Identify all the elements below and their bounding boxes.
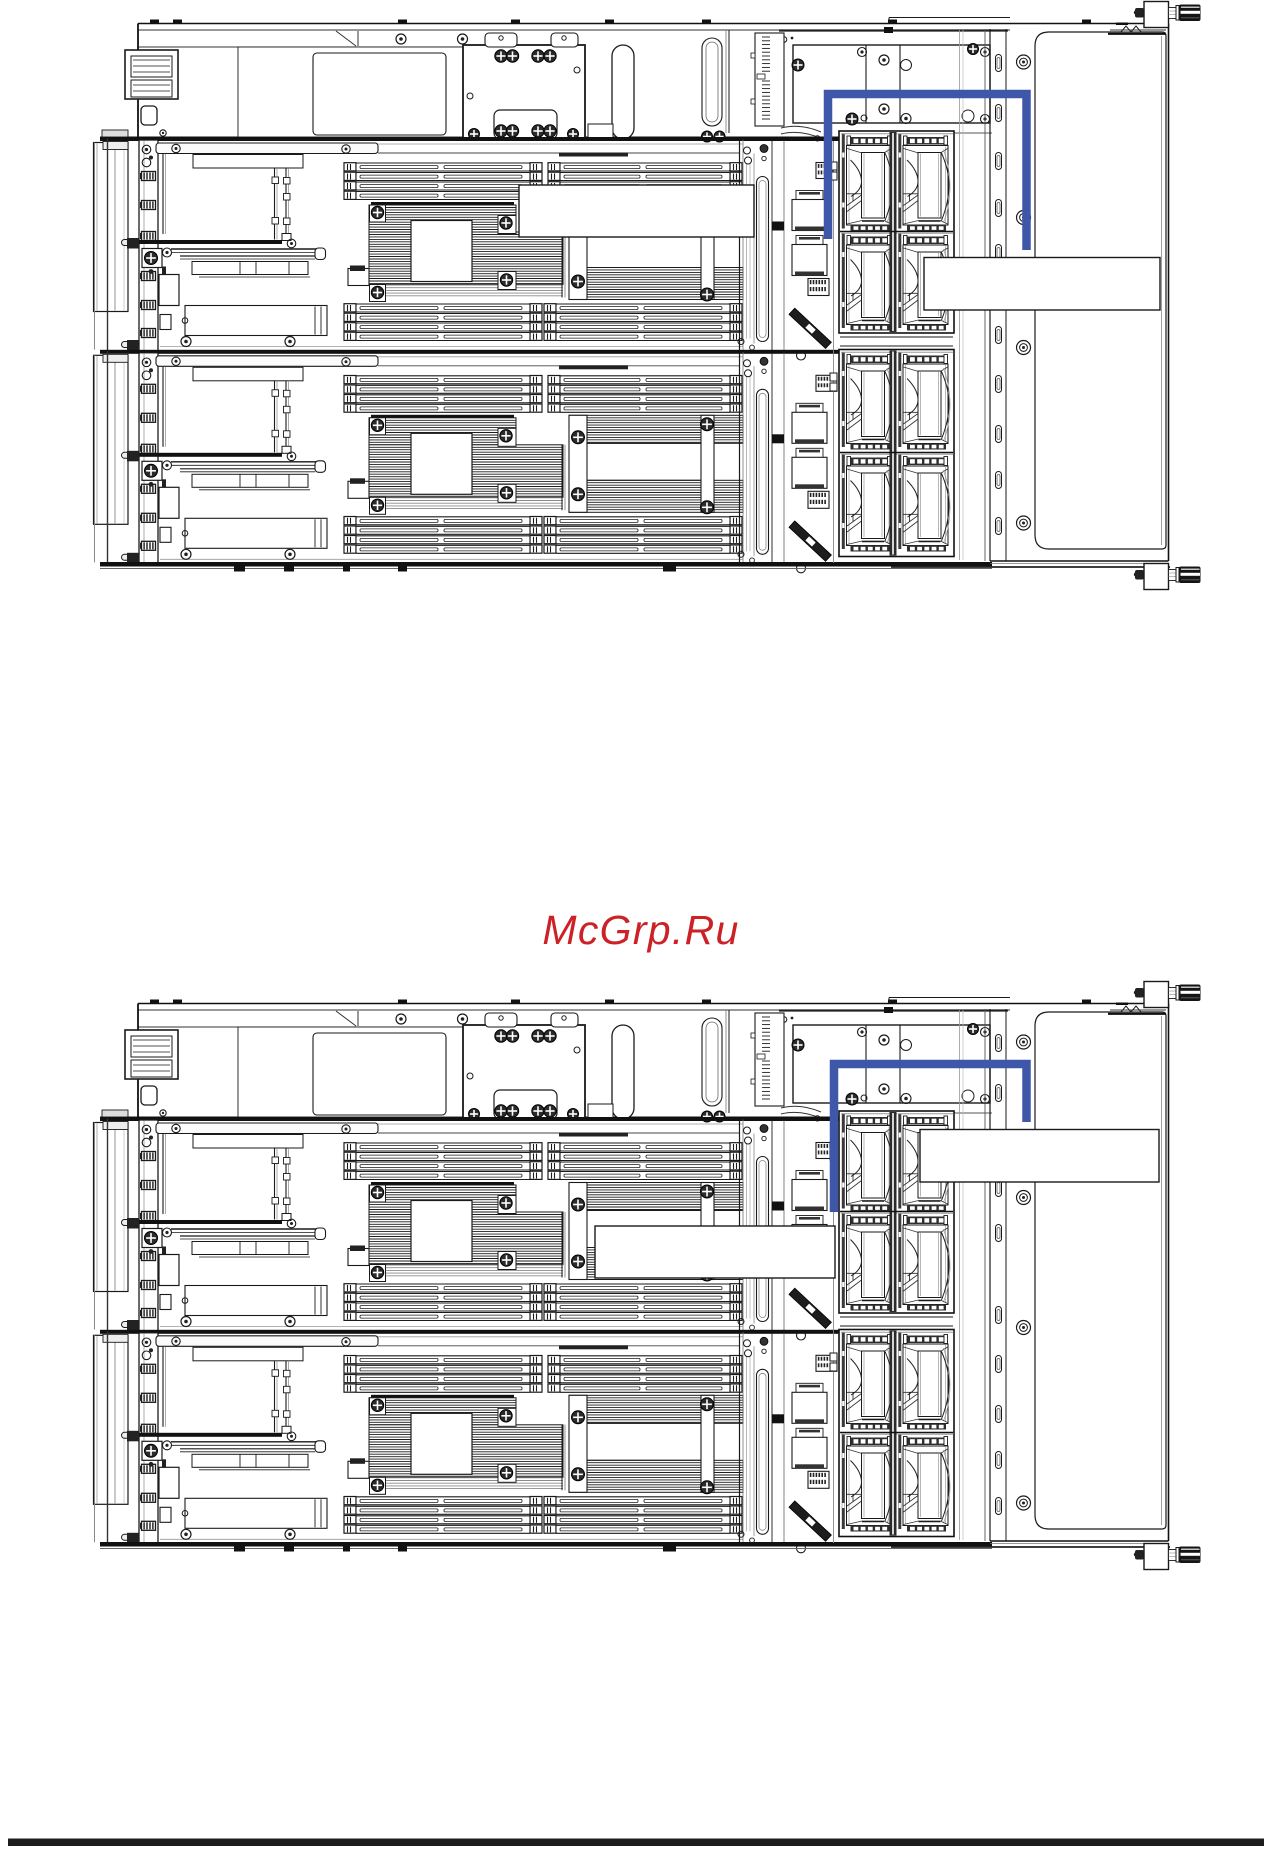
svg-text:McGrp.Ru: McGrp.Ru (542, 907, 739, 953)
